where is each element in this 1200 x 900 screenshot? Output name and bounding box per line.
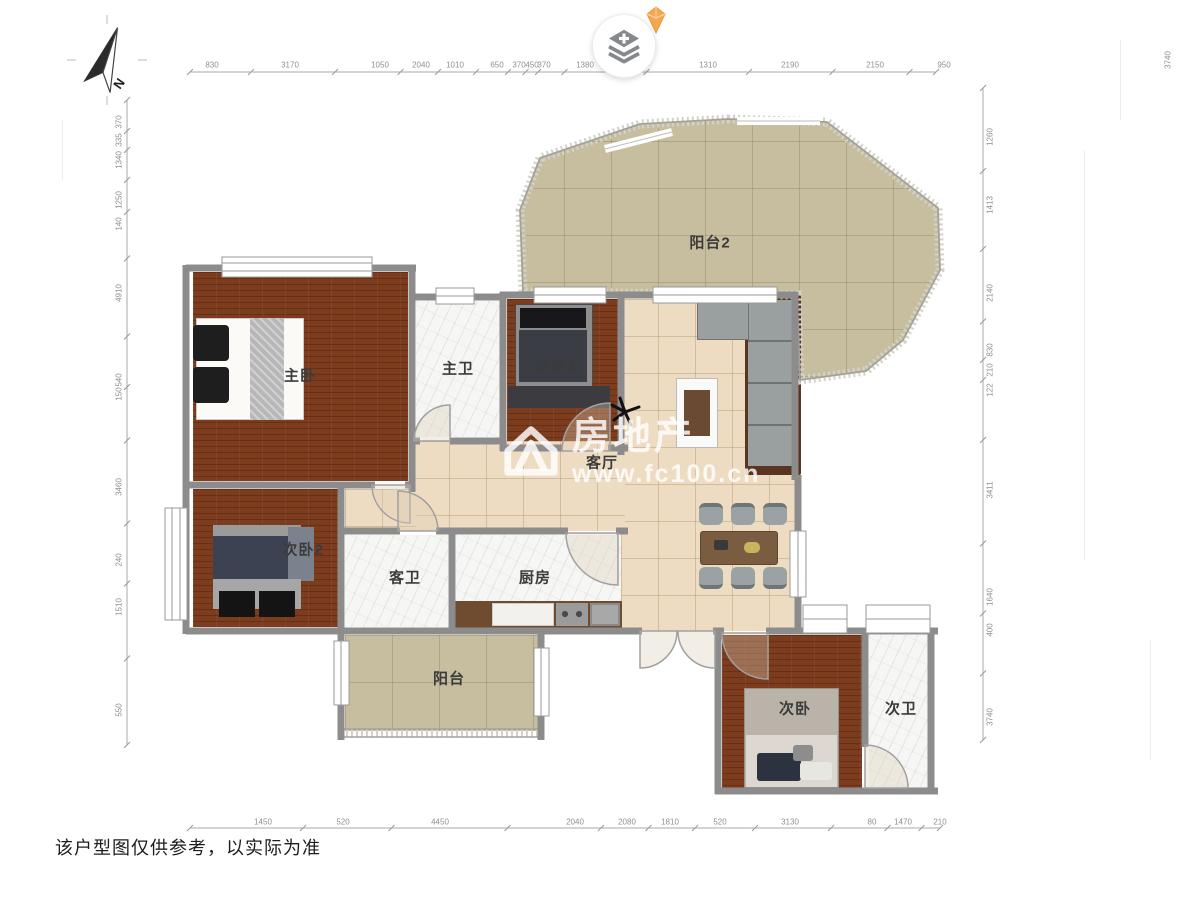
- dining-chair: [699, 567, 723, 589]
- master-bed-runner: [250, 318, 284, 420]
- dim-label: 1413: [986, 196, 995, 214]
- table-decor: [714, 540, 728, 550]
- stove: [556, 603, 588, 626]
- room-label-bedroom2: 次卧2: [282, 539, 323, 560]
- dim-label: 4450: [431, 818, 449, 827]
- paper-streak: [1150, 640, 1151, 760]
- dim-label: 370: [537, 61, 550, 70]
- dim-label: 1310: [699, 61, 717, 70]
- dim-label: 1450: [254, 818, 272, 827]
- dim-label: 1470: [894, 818, 912, 827]
- dim-label: 210: [933, 818, 946, 827]
- dining-chair: [763, 567, 787, 589]
- bedroom-pillow: [793, 745, 813, 761]
- compass-n-label: N: [110, 75, 128, 91]
- room-floor-hallway2: [345, 489, 416, 531]
- layers-add-icon: [604, 26, 644, 66]
- table-flowers: [744, 542, 760, 553]
- dim-label: 830: [986, 343, 995, 356]
- dim-label: 3740: [986, 708, 995, 726]
- bedroom2-cushion: [259, 591, 295, 617]
- dim-label: 3130: [781, 818, 799, 827]
- dim-label: 240: [115, 553, 124, 566]
- sofa-seats: [748, 300, 792, 466]
- room-label-master-bath: 主卫: [442, 358, 474, 379]
- nightstand: [193, 367, 229, 403]
- bedroom2-cushion: [219, 591, 255, 617]
- room-label-balcony: 阳台: [433, 668, 465, 689]
- dim-label: 2040: [566, 818, 584, 827]
- dim-label: 520: [713, 818, 726, 827]
- dim-label: 1510: [115, 598, 124, 616]
- dim-label: 2190: [781, 61, 799, 70]
- bedroom-pillow: [800, 762, 832, 780]
- nightstand: [193, 325, 229, 361]
- sink: [590, 603, 620, 626]
- dim-label: 4910: [115, 284, 124, 302]
- room-label-bedroom3: 次卧3: [535, 356, 576, 377]
- dim-label: 1260: [986, 128, 995, 146]
- room-label-guest-bath: 客卫: [389, 567, 421, 588]
- dim-label: 150: [115, 387, 124, 400]
- dim-label: 3411: [986, 481, 995, 498]
- dim-label: 650: [490, 61, 503, 70]
- room-label-balcony2: 阳台2: [689, 232, 730, 253]
- paper-streak: [1084, 150, 1085, 560]
- room-label-kitchen: 厨房: [519, 567, 551, 588]
- dim-label: 3460: [115, 478, 124, 496]
- room-label-living-room: 客厅: [586, 452, 618, 473]
- dim-label: 1340: [115, 151, 124, 169]
- dim-label-edge: 3740: [1164, 51, 1173, 69]
- dim-label: 2140: [986, 284, 995, 302]
- bedroom3-wardrobe: [508, 386, 610, 408]
- dim-label: 1050: [371, 61, 389, 70]
- dim-label: 2080: [618, 818, 636, 827]
- dim-label: 1640: [986, 588, 995, 606]
- dim-label: 1810: [661, 818, 679, 827]
- compass-north-icon: N: [67, 15, 147, 105]
- dining-chair: [699, 503, 723, 525]
- dining-chair: [731, 567, 755, 589]
- dim-label: 2150: [866, 61, 884, 70]
- dim-label: 400: [986, 623, 995, 636]
- dim-label: 520: [336, 818, 349, 827]
- paper-streak: [62, 120, 63, 180]
- disclaimer-text: 该户型图仅供参考，以实际为准: [55, 834, 321, 860]
- bedroom3-pillow: [520, 308, 586, 328]
- dim-label: 370: [115, 115, 124, 128]
- dim-label: 540: [115, 373, 124, 386]
- room-label-master-bedroom: 主卧: [284, 365, 316, 386]
- dining-table: [700, 531, 778, 565]
- kitchen-cabinet: [492, 603, 554, 626]
- paper-streak: [1120, 40, 1121, 120]
- floorplan-canvas[interactable]: N 房地产 www.fc100.cn: [0, 0, 1200, 900]
- dim-label: 80: [868, 818, 877, 827]
- dining-chair: [763, 503, 787, 525]
- dim-label: 1010: [446, 61, 464, 70]
- dim-label: 830: [205, 61, 218, 70]
- dining-chair: [731, 503, 755, 525]
- dim-label: 370: [512, 61, 525, 70]
- dim-label: 335: [115, 133, 124, 146]
- sofa-chaise: [697, 302, 749, 340]
- vip-gem-icon: [645, 6, 667, 34]
- dim-label: 1250: [115, 191, 124, 209]
- room-label-bedroom: 次卧: [779, 698, 811, 719]
- dim-label: 122: [986, 383, 995, 396]
- dim-label: 1380: [576, 61, 594, 70]
- dim-label: 550: [115, 703, 124, 716]
- dim-label: 950: [937, 61, 950, 70]
- dim-label: 140: [115, 217, 124, 230]
- dim-label: 3170: [281, 61, 299, 70]
- room-label-bath2: 次卫: [885, 698, 917, 719]
- dim-label: 2040: [412, 61, 430, 70]
- tv: [684, 390, 710, 436]
- dim-label: 210: [986, 363, 995, 376]
